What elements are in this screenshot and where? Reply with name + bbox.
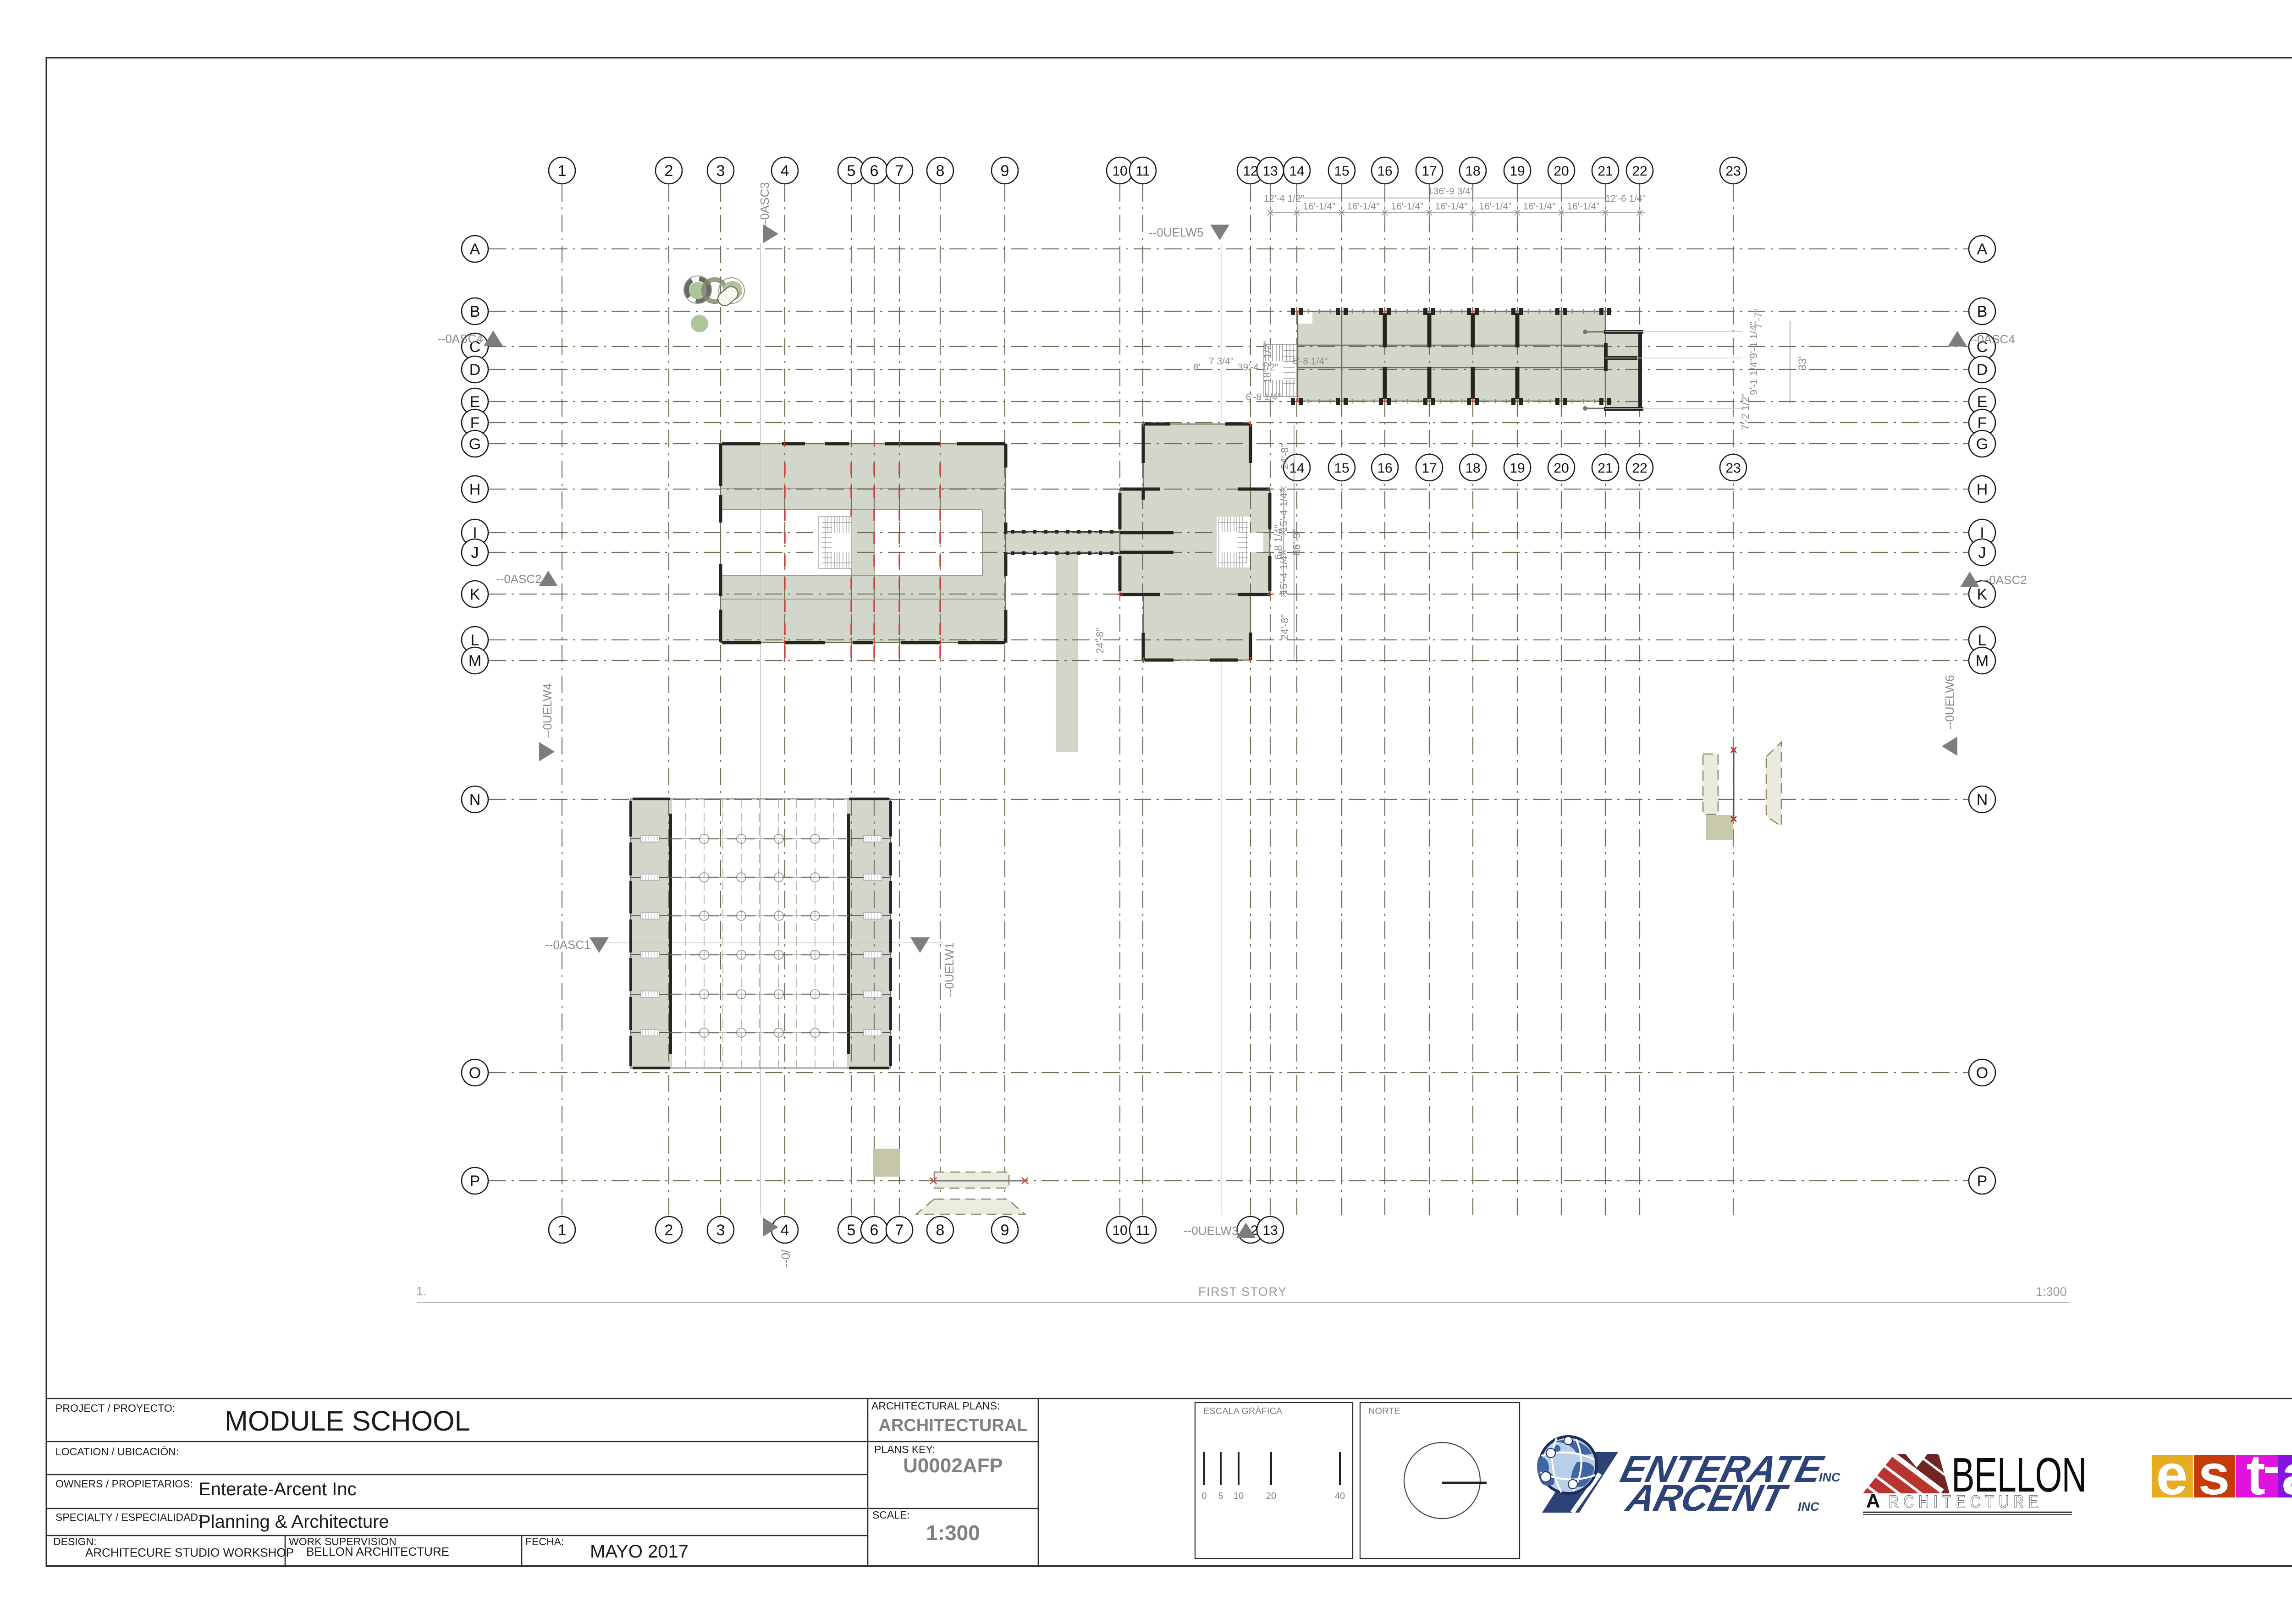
svg-text:13: 13 <box>1262 164 1278 179</box>
svg-text:16'-1/4": 16'-1/4" <box>1435 201 1467 212</box>
svg-text:e: e <box>2156 1443 2188 1507</box>
svg-text:9'-1 1/4": 9'-1 1/4" <box>1748 358 1759 396</box>
svg-text:ESCALA GRÁFICA: ESCALA GRÁFICA <box>1203 1406 1283 1416</box>
svg-text:20: 20 <box>1266 1491 1276 1501</box>
svg-text:B: B <box>470 303 480 320</box>
svg-text:ARCHITECTURAL PLANS:: ARCHITECTURAL PLANS: <box>871 1400 1000 1412</box>
svg-text:PLANS KEY:: PLANS KEY: <box>874 1443 935 1455</box>
svg-text:BELLON ARCHITECTURE: BELLON ARCHITECTURE <box>306 1545 449 1558</box>
svg-text:19: 19 <box>1510 164 1525 179</box>
svg-text:J: J <box>1978 544 1986 562</box>
svg-text:MAYO 2017: MAYO 2017 <box>590 1541 689 1562</box>
svg-text:t: t <box>2246 1443 2265 1507</box>
svg-text:3: 3 <box>716 162 725 180</box>
svg-text:--0ASC1: --0ASC1 <box>545 938 591 952</box>
svg-text:SCALE:: SCALE: <box>872 1509 910 1521</box>
svg-text:15: 15 <box>1334 164 1349 179</box>
svg-text:--0ASC2: --0ASC2 <box>496 572 542 586</box>
svg-text:12'-4 1/2": 12'-4 1/2" <box>1264 193 1305 204</box>
svg-text:OWNERS / PROPIETARIOS:: OWNERS / PROPIETARIOS: <box>55 1478 193 1490</box>
svg-text:8': 8' <box>1193 362 1201 373</box>
svg-text:24'-8": 24'-8" <box>1279 444 1290 469</box>
svg-text:J: J <box>471 544 479 562</box>
svg-text:2: 2 <box>665 162 673 180</box>
svg-text:N: N <box>1977 791 1988 809</box>
svg-text:17: 17 <box>1421 461 1437 476</box>
svg-text:22: 22 <box>1632 164 1647 179</box>
svg-text:12'-6 1/4": 12'-6 1/4" <box>1605 193 1646 204</box>
svg-text:15: 15 <box>1334 461 1349 476</box>
svg-text:ARCENT: ARCENT <box>1622 1477 1792 1519</box>
svg-text:16'-1/4": 16'-1/4" <box>1523 201 1555 212</box>
svg-text:5: 5 <box>847 162 856 180</box>
svg-text:M: M <box>468 652 481 670</box>
svg-text:86'-9": 86'-9" <box>1290 529 1302 556</box>
svg-text:2: 2 <box>665 1222 673 1239</box>
svg-text:9'-1 1/4": 9'-1 1/4" <box>1748 322 1759 359</box>
svg-text:9: 9 <box>1001 162 1009 180</box>
svg-text:F: F <box>470 414 480 432</box>
svg-text:FECHA:: FECHA: <box>525 1536 564 1547</box>
svg-text:SPECIALTY / ESPECIALIDAD:: SPECIALTY / ESPECIALIDAD: <box>55 1511 201 1523</box>
svg-text:20: 20 <box>1554 461 1569 476</box>
svg-text:18: 18 <box>1465 164 1480 179</box>
svg-text:1:300: 1:300 <box>2036 1285 2067 1299</box>
svg-text:7: 7 <box>895 162 904 180</box>
svg-text:M: M <box>1976 652 1989 670</box>
svg-text:20: 20 <box>1554 164 1569 179</box>
svg-text:5: 5 <box>1218 1491 1223 1501</box>
svg-text:24'-8": 24'-8" <box>1094 628 1106 654</box>
svg-text:7 3/4": 7 3/4" <box>1209 356 1234 367</box>
svg-text:16'-1/4": 16'-1/4" <box>1567 201 1599 212</box>
svg-text:--0ASC4: --0ASC4 <box>1969 332 2015 346</box>
svg-text:A: A <box>470 241 480 258</box>
svg-text:LOCATION / UBICACIÓN:: LOCATION / UBICACIÓN: <box>55 1446 179 1458</box>
svg-text:Planning & Architecture: Planning & Architecture <box>198 1512 389 1532</box>
svg-text:6'-8 1/4": 6'-8 1/4" <box>1246 392 1281 402</box>
svg-text:--0ASC2: --0ASC2 <box>1981 573 2027 587</box>
svg-text:E: E <box>470 393 480 411</box>
svg-text:ARCHITECURE STUDIO WORKSHOP: ARCHITECURE STUDIO WORKSHOP <box>85 1546 294 1559</box>
svg-text:NORTE: NORTE <box>1368 1406 1400 1416</box>
svg-text:7'-2 1/2": 7'-2 1/2" <box>1740 393 1751 430</box>
svg-text:136'-9 3/4": 136'-9 3/4" <box>1428 186 1474 197</box>
svg-text:1:300: 1:300 <box>926 1521 980 1545</box>
svg-text:19: 19 <box>1510 461 1525 476</box>
svg-text:INC: INC <box>1819 1470 1840 1484</box>
svg-text:16: 16 <box>1377 461 1392 476</box>
svg-text:A: A <box>1866 1490 1880 1512</box>
svg-text:4: 4 <box>781 162 789 180</box>
svg-text:G: G <box>469 435 481 453</box>
svg-text:18: 18 <box>1465 461 1480 476</box>
svg-text:15'-4 1/4": 15'-4 1/4" <box>1278 552 1289 595</box>
svg-text:P: P <box>1977 1173 1988 1190</box>
svg-text:H: H <box>469 481 481 498</box>
svg-text:a: a <box>2282 1443 2292 1507</box>
svg-text:8: 8 <box>936 1222 945 1239</box>
svg-text:22: 22 <box>1632 461 1647 476</box>
svg-text:G: G <box>1976 435 1988 453</box>
svg-text:K: K <box>1977 586 1988 603</box>
svg-text:L: L <box>1978 632 1987 649</box>
svg-text:3: 3 <box>716 1222 725 1239</box>
svg-text:E: E <box>1977 393 1988 411</box>
svg-text:14: 14 <box>1289 164 1304 179</box>
svg-text:16'-1/4": 16'-1/4" <box>1347 201 1379 212</box>
svg-text:7: 7 <box>895 1222 904 1239</box>
svg-text:--0UELW3: --0UELW3 <box>1184 1224 1238 1238</box>
svg-text:--0ASC4: --0ASC4 <box>437 332 483 346</box>
svg-text:10: 10 <box>1112 1223 1127 1238</box>
svg-text:RCHITECTURE: RCHITECTURE <box>1889 1492 2043 1512</box>
svg-text:ARCHITECTURAL: ARCHITECTURAL <box>878 1416 1027 1435</box>
svg-text:1: 1 <box>558 1222 567 1239</box>
svg-text:D: D <box>1977 361 1988 379</box>
svg-text:B: B <box>1977 303 1988 320</box>
svg-text:9: 9 <box>1001 1222 1009 1239</box>
svg-text:18'-2 1/2": 18'-2 1/2" <box>1262 341 1273 384</box>
svg-text:FIRST STORY: FIRST STORY <box>1198 1285 1287 1299</box>
svg-text:5: 5 <box>847 1222 856 1239</box>
svg-text:D: D <box>469 361 481 379</box>
svg-text:0: 0 <box>1201 1491 1207 1501</box>
svg-text:16'-1/4": 16'-1/4" <box>1303 201 1335 212</box>
svg-text:K: K <box>470 586 480 603</box>
svg-text:A: A <box>1977 241 1988 258</box>
svg-text:24'-8": 24'-8" <box>1279 614 1290 640</box>
svg-text:11: 11 <box>1135 164 1150 179</box>
svg-text:PROJECT / PROYECTO:: PROJECT / PROYECTO: <box>55 1402 175 1414</box>
svg-text:4: 4 <box>781 1222 789 1239</box>
svg-text:11: 11 <box>1135 1223 1150 1238</box>
svg-text:6: 6 <box>870 1222 879 1239</box>
svg-text:H: H <box>1977 481 1988 498</box>
svg-text:--0/: --0/ <box>779 1249 793 1267</box>
svg-text:12: 12 <box>1243 164 1258 179</box>
svg-text:F: F <box>1978 414 1987 432</box>
svg-text:1: 1 <box>558 162 567 180</box>
svg-text:--0UELW5: --0UELW5 <box>1149 226 1203 239</box>
svg-text:s: s <box>2198 1443 2230 1507</box>
svg-text:13: 13 <box>1262 1223 1278 1238</box>
svg-text:21: 21 <box>1598 461 1613 476</box>
svg-text:21: 21 <box>1598 164 1613 179</box>
svg-text:23: 23 <box>1725 164 1741 179</box>
svg-text:U0002AFP: U0002AFP <box>903 1454 1003 1477</box>
svg-text:16'-1/4": 16'-1/4" <box>1391 201 1423 212</box>
svg-text:Enterate-Arcent Inc: Enterate-Arcent Inc <box>198 1479 357 1499</box>
svg-text:P: P <box>470 1173 480 1190</box>
svg-text:O: O <box>1976 1064 1988 1082</box>
svg-text:16: 16 <box>1377 164 1392 179</box>
svg-text:6: 6 <box>870 162 879 180</box>
svg-text:10: 10 <box>1234 1491 1244 1501</box>
svg-text:INC: INC <box>1798 1500 1819 1514</box>
svg-text:1.: 1. <box>416 1284 427 1298</box>
svg-text:--0ASC3: --0ASC3 <box>758 182 771 228</box>
svg-text:14: 14 <box>1289 461 1304 476</box>
svg-text:O: O <box>469 1064 481 1082</box>
svg-text:--0UELW4: --0UELW4 <box>540 683 554 738</box>
svg-text:MODULE SCHOOL: MODULE SCHOOL <box>225 1405 470 1437</box>
svg-text:L: L <box>471 632 479 649</box>
svg-text:16'-1/4": 16'-1/4" <box>1479 201 1511 212</box>
svg-text:17: 17 <box>1421 164 1437 179</box>
svg-text:10: 10 <box>1112 164 1127 179</box>
svg-text:6'-8 1/4": 6'-8 1/4" <box>1293 356 1328 367</box>
svg-text:33': 33' <box>1796 356 1809 370</box>
svg-text:--0UELW1: --0UELW1 <box>942 942 956 997</box>
svg-text:23: 23 <box>1725 461 1741 476</box>
svg-text:N: N <box>469 791 481 809</box>
svg-text:40: 40 <box>1335 1491 1345 1501</box>
svg-text:--0UELW6: --0UELW6 <box>1943 675 1956 730</box>
svg-text:8: 8 <box>936 162 945 180</box>
